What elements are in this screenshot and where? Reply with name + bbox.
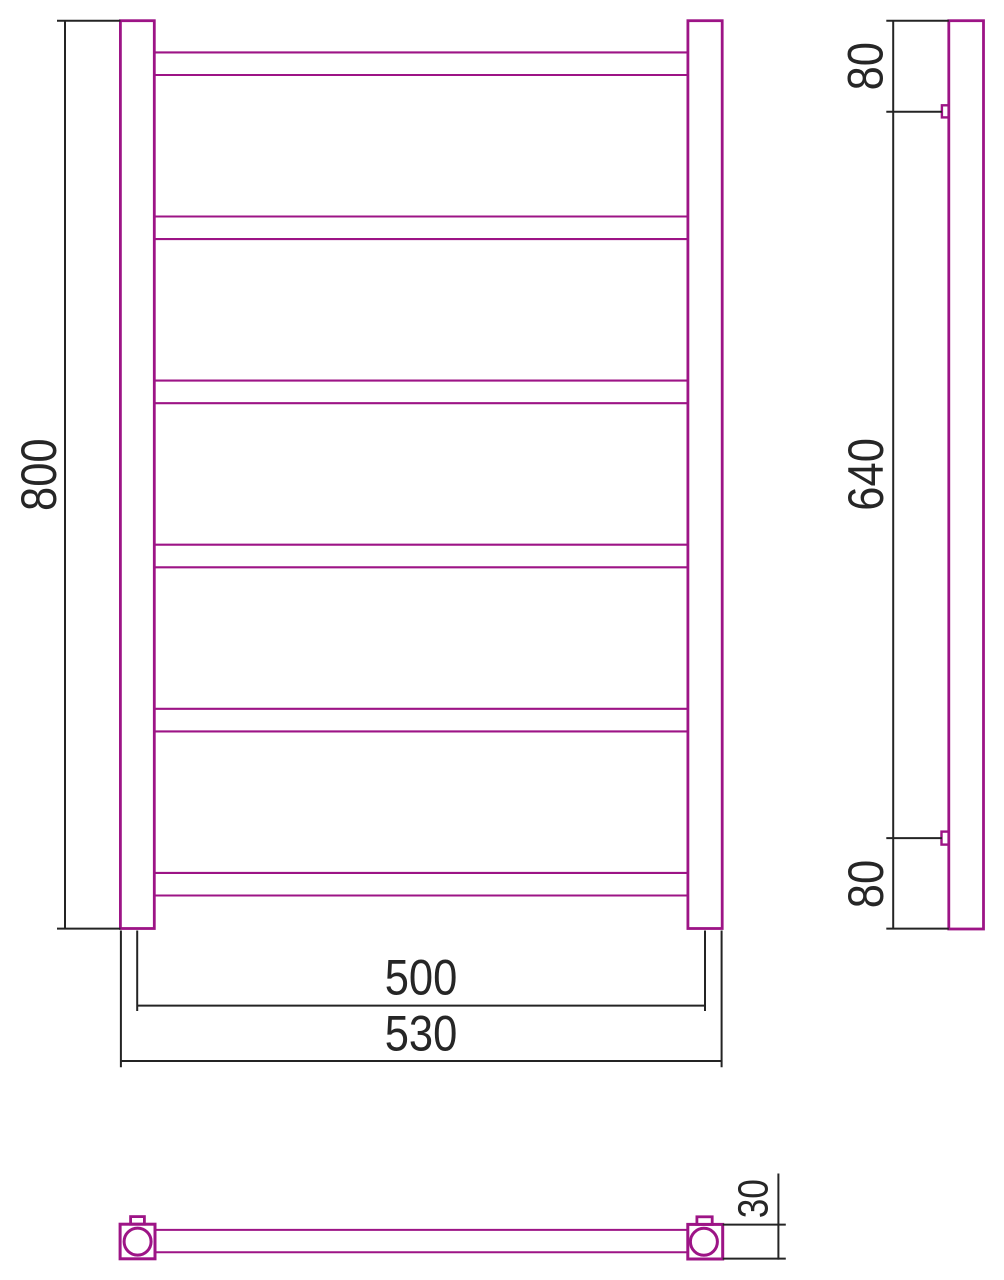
svg-text:80: 80 — [838, 860, 893, 908]
svg-text:80: 80 — [838, 42, 893, 90]
svg-text:500: 500 — [385, 949, 458, 1004]
svg-text:800: 800 — [11, 438, 66, 511]
svg-text:530: 530 — [385, 1006, 458, 1061]
svg-text:30: 30 — [729, 1179, 777, 1218]
svg-text:640: 640 — [838, 438, 893, 511]
